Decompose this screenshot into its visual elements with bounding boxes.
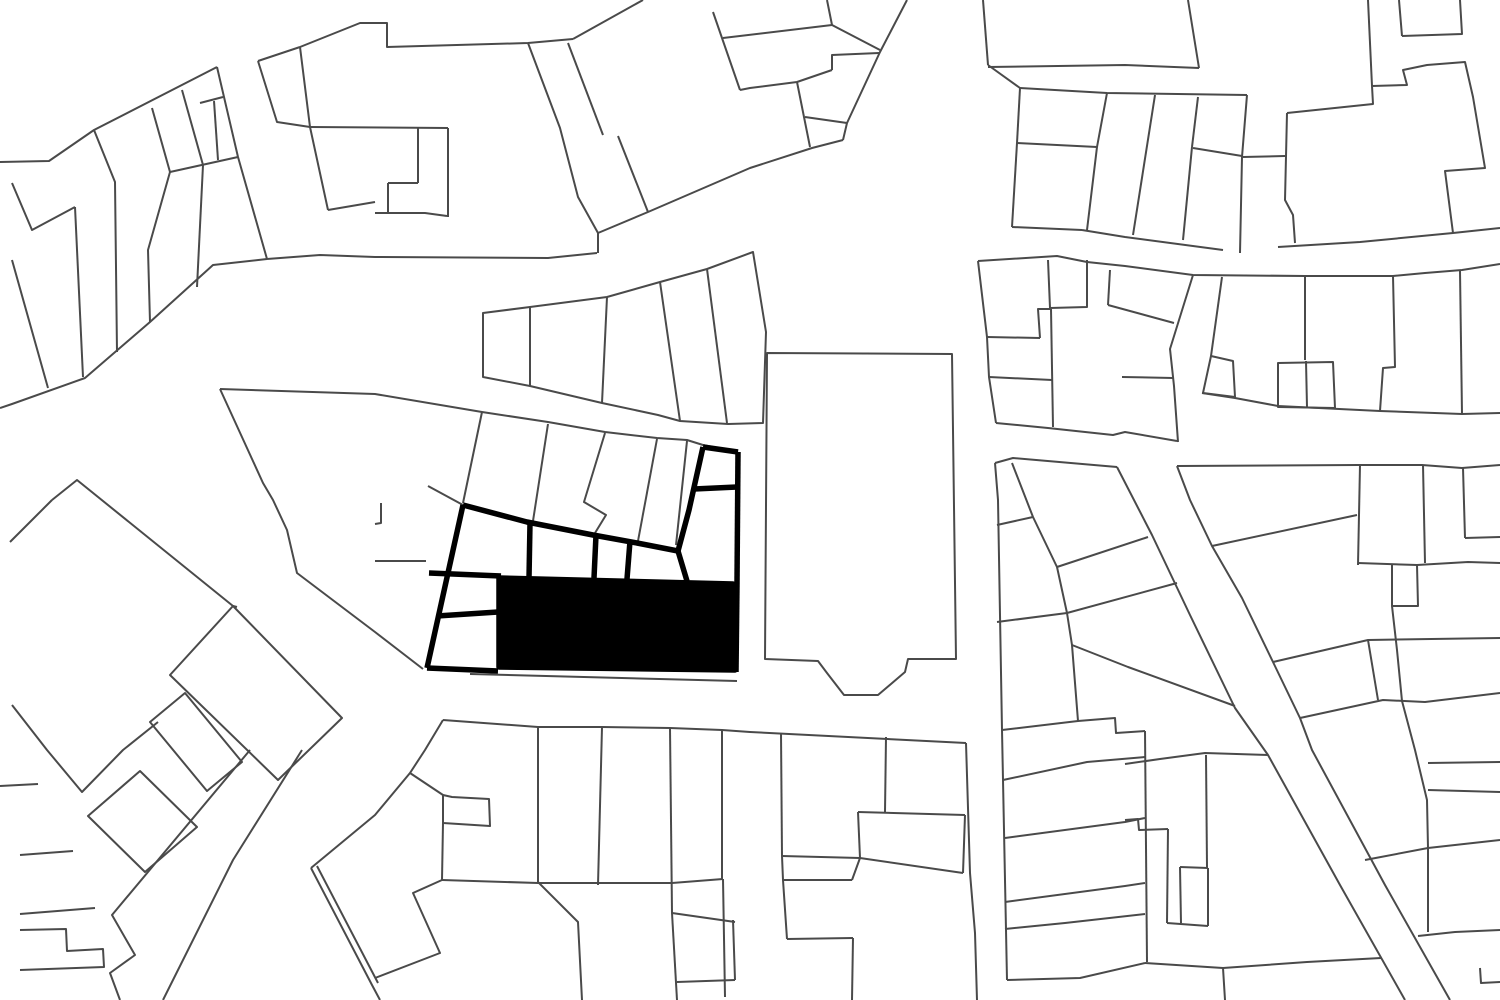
parcel-boundary <box>442 880 538 883</box>
parcel-boundary <box>1117 467 1405 1000</box>
parcel-boundary <box>1005 883 1145 902</box>
parcel-boundary <box>594 535 596 578</box>
parcel-boundary <box>1177 465 1500 468</box>
parcel-boundary <box>1072 645 1235 706</box>
parcel-boundary <box>300 23 375 47</box>
parcel-boundary <box>677 980 735 982</box>
parcel-boundary <box>152 108 170 172</box>
parcel-boundary <box>375 23 573 47</box>
parcel-boundary <box>1145 958 1381 968</box>
parcel-boundary <box>672 913 735 922</box>
parcel-boundary <box>214 101 218 160</box>
parcel-boundary <box>110 750 250 1000</box>
parcel-boundary <box>12 183 75 230</box>
parcel-boundary <box>220 389 738 452</box>
parcel-boundary <box>0 784 38 786</box>
parcel-boundary <box>996 423 1177 441</box>
parcel-boundary <box>1211 277 1222 356</box>
parcel-boundary <box>805 117 847 123</box>
parcel-boundary <box>1002 718 1145 733</box>
parcel-boundary <box>429 573 501 576</box>
parcel-boundary <box>10 500 52 542</box>
parcel-boundary <box>1003 757 1145 780</box>
parcel-boundary <box>618 136 648 212</box>
parcel-boundary <box>703 447 738 452</box>
parcel-boundary <box>1368 0 1372 86</box>
map-stage <box>0 0 1500 1000</box>
parcel-boundary <box>1108 270 1110 305</box>
parcel-boundary <box>1017 143 1097 147</box>
parcel-boundary <box>860 858 963 873</box>
cadastral-map[interactable] <box>0 0 1500 1000</box>
parcel-boundary <box>988 65 1020 88</box>
parcel-boundary <box>437 612 498 616</box>
parcel-boundary <box>983 0 988 65</box>
parcel-boundary <box>533 424 548 521</box>
parcel-boundary <box>713 12 740 90</box>
parcel-boundary <box>1125 753 1268 764</box>
parcel-boundary <box>1428 790 1500 792</box>
highlighted-parcel-shape[interactable] <box>499 578 735 670</box>
parcel-boundary <box>573 0 643 39</box>
parcel-boundary <box>182 90 203 165</box>
parcel-boundary <box>1067 583 1177 613</box>
parcel-boundary <box>843 0 907 140</box>
parcel-boundary <box>0 67 217 162</box>
parcel-boundary <box>94 130 117 352</box>
parcel-boundary <box>12 260 48 388</box>
parcel-boundary <box>217 67 267 259</box>
parcel-boundary <box>443 795 490 826</box>
parcel-boundary <box>170 157 238 172</box>
parcel-boundary <box>787 938 853 939</box>
parcel-boundary <box>723 879 725 997</box>
parcel-boundary <box>782 856 860 858</box>
parcel-boundary <box>1402 0 1462 36</box>
parcel-boundary <box>20 908 95 914</box>
parcel-boundary <box>410 773 443 795</box>
parcel-boundary <box>1365 840 1500 860</box>
parcel-boundary <box>1012 463 1078 721</box>
parcel-boundary <box>598 140 843 233</box>
parcel-boundary <box>885 737 886 812</box>
parcel-boundary <box>989 377 1052 380</box>
parcel-boundary <box>310 127 448 128</box>
parcel-boundary <box>88 771 197 872</box>
parcel-boundary <box>670 728 672 913</box>
parcel-boundary <box>827 0 832 25</box>
parcel-boundary <box>678 551 687 581</box>
parcel-boundary <box>832 25 880 50</box>
parcel-boundary <box>1192 97 1198 147</box>
parcel-boundary <box>258 47 300 61</box>
parcel-boundary <box>1203 356 1235 397</box>
parcel-boundary <box>1180 867 1181 923</box>
highlighted-parcel[interactable] <box>499 578 735 670</box>
parcel-boundary <box>736 583 737 672</box>
parcel-boundary <box>1278 228 1500 247</box>
parcel-boundary <box>1287 62 1485 233</box>
parcel-boundary <box>1306 361 1307 407</box>
parcel-boundary <box>1358 465 1360 565</box>
parcel-boundary <box>197 165 203 287</box>
parcel-boundary <box>781 733 782 856</box>
parcel-boundary <box>1177 466 1450 1000</box>
parcel-boundary <box>1108 305 1174 323</box>
parcel-boundary <box>538 882 582 1000</box>
parcel-boundary <box>638 439 657 541</box>
parcel-boundary <box>1463 468 1465 538</box>
parcel-boundary <box>300 47 328 210</box>
parcel-boundary <box>1005 914 1145 929</box>
parcel-boundary <box>797 82 810 147</box>
parcel-boundary <box>267 253 597 259</box>
parcel-boundary <box>995 463 1002 730</box>
parcel-boundary <box>765 353 956 695</box>
parcel-boundary <box>1167 829 1168 923</box>
parcel-boundary <box>1212 515 1357 546</box>
parcel-boundary <box>1273 638 1500 662</box>
parcel-boundary <box>463 412 482 503</box>
parcel-boundary <box>1012 227 1082 230</box>
parcel-boundary <box>428 486 463 505</box>
parcel-boundary <box>1183 147 1192 240</box>
parcel-boundary <box>538 879 723 883</box>
parcel-boundary <box>12 705 158 792</box>
parcel-boundary <box>978 256 1500 276</box>
parcel-boundary <box>317 866 378 983</box>
parcel-boundary <box>328 202 375 210</box>
parcel-boundary <box>463 505 678 551</box>
parcel-boundary <box>707 269 727 423</box>
parcel-boundary <box>1206 755 1207 867</box>
parcel-boundary <box>1285 113 1295 243</box>
parcel-boundary <box>163 750 302 1000</box>
parcel-boundary <box>443 720 966 743</box>
parcel-boundary <box>470 674 737 681</box>
parcel-boundary <box>0 259 267 408</box>
parcel-boundary <box>1050 260 1087 308</box>
parcel-boundary <box>963 815 965 873</box>
parcel-boundary <box>1048 260 1050 308</box>
parcel-boundary <box>1180 867 1208 868</box>
parcel-boundary <box>1038 309 1050 338</box>
parcel-boundary <box>375 503 381 524</box>
parcel-boundary <box>1300 693 1500 718</box>
parcel-boundary <box>1005 818 1145 838</box>
parcel-boundary <box>20 851 73 855</box>
parcel-boundary <box>858 812 860 858</box>
parcel-boundary <box>20 929 104 970</box>
parcel-boundary <box>1170 275 1193 442</box>
parcel-boundary <box>852 858 860 880</box>
parcel-boundary <box>1368 640 1378 700</box>
parcel-boundary <box>427 668 498 671</box>
parcel-boundary <box>1193 148 1242 156</box>
parcel-boundary <box>1188 0 1199 68</box>
parcel-boundary <box>1020 88 1247 95</box>
parcel-boundary <box>584 433 606 533</box>
parcel-boundary <box>1423 465 1425 563</box>
parcel-boundary <box>1358 562 1500 565</box>
parcel-boundary <box>997 517 1033 525</box>
parcel-boundary <box>1002 730 1007 980</box>
parcel-boundary <box>1051 309 1053 427</box>
parcel-boundary <box>694 487 737 489</box>
parcel-boundary <box>737 452 738 583</box>
parcel-boundary <box>1465 537 1500 538</box>
parcel-boundary <box>598 727 602 885</box>
parcel-boundary <box>529 523 530 578</box>
parcel-boundary <box>627 541 630 579</box>
parcel-boundary <box>782 856 787 939</box>
parcel-boundary <box>311 868 380 1000</box>
parcel-boundary <box>723 25 832 38</box>
parcel-boundary <box>987 337 1040 338</box>
parcel-boundary <box>997 613 1067 622</box>
parcel-boundary <box>148 172 170 322</box>
parcel-boundary <box>1240 95 1247 253</box>
parcel-boundary <box>52 480 233 606</box>
parcel-boundary <box>1392 565 1418 606</box>
parcel-boundary <box>1480 968 1500 983</box>
parcel-boundary <box>660 282 680 421</box>
parcel-boundary <box>220 389 423 669</box>
parcel-boundary <box>1202 393 1500 414</box>
parcel-boundary <box>311 720 443 868</box>
parcel-boundary <box>1133 95 1155 235</box>
parcel-boundary <box>1145 731 1147 962</box>
parcel-boundary <box>602 297 607 403</box>
parcel-boundary <box>733 920 735 980</box>
parcel-boundary <box>1380 276 1395 411</box>
parcel-boundary <box>672 913 677 1000</box>
parcel-boundary <box>170 606 342 780</box>
parcel-boundary <box>1082 230 1223 250</box>
parcel-boundary <box>442 823 443 880</box>
parcel-boundary <box>375 880 442 978</box>
parcel-boundary <box>528 43 598 233</box>
parcel-boundary <box>1167 923 1208 926</box>
parcel-boundary <box>200 97 223 103</box>
parcel-boundary <box>1243 156 1285 157</box>
parcel-boundary <box>1087 93 1107 230</box>
thin-parcel-lines <box>0 0 1500 1000</box>
parcel-boundary <box>852 938 853 1000</box>
parcel-boundary <box>858 812 965 815</box>
parcel-boundary <box>1223 968 1225 1000</box>
parcel-boundary <box>1399 0 1402 36</box>
parcel-boundary <box>1428 762 1500 763</box>
parcel-boundary <box>1017 88 1020 143</box>
parcel-boundary <box>966 743 977 1000</box>
parcel-boundary <box>988 65 1199 68</box>
parcel-boundary <box>1012 143 1017 227</box>
parcel-boundary <box>568 43 603 135</box>
parcel-boundary <box>427 505 463 668</box>
parcel-boundary <box>1057 537 1148 567</box>
parcel-boundary <box>375 213 447 216</box>
parcel-boundary <box>978 261 996 423</box>
parcel-boundary <box>740 70 832 90</box>
parcel-boundary <box>1460 271 1462 414</box>
parcel-boundary <box>1418 930 1500 936</box>
parcel-boundary <box>1007 963 1145 980</box>
parcel-boundary <box>75 207 83 377</box>
parcel-boundary <box>1122 377 1173 378</box>
parcel-boundary <box>1392 606 1428 848</box>
